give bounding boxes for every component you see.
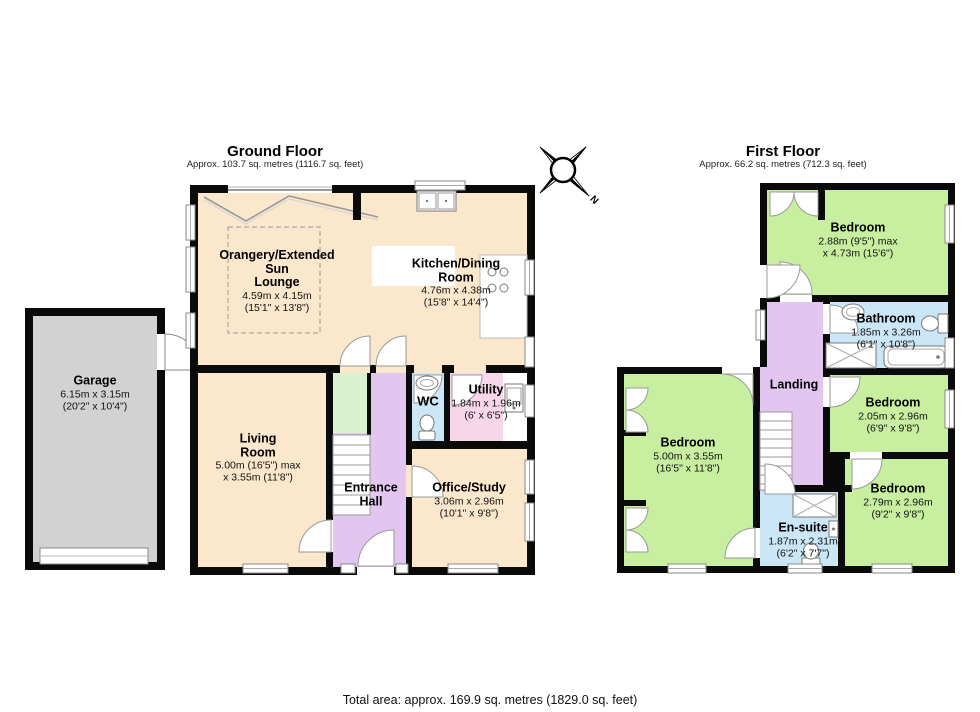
room-label-bedroom-right: Bedroom 2.05m x 2.96m (6'9" x 9'8") <box>858 396 927 434</box>
window <box>945 338 954 368</box>
room-dims-imperial: (16'5" x 11'8") <box>653 462 722 474</box>
room-name: Lounge <box>219 276 334 290</box>
room-label-entrance-hall: Entrance Hall <box>344 482 398 509</box>
room-name: Orangery/Extended <box>219 249 334 263</box>
room-name: Office/Study <box>432 481 506 495</box>
room-label-office: Office/Study 3.06m x 2.96m (10'1" x 9'8"… <box>432 481 506 519</box>
room-dims-metric: 2.88m (9'5") max <box>818 235 897 247</box>
room-dims-imperial: (6'2" x 7'7") <box>768 547 837 559</box>
ground-floor-title: Ground Floor <box>227 143 323 160</box>
room-dims-metric: 2.79m x 2.96m <box>863 496 932 508</box>
room-name: Bedroom <box>858 396 927 410</box>
room-label-kitchen: Kitchen/Dining Room 4.76m x 4.38m (15'8"… <box>412 258 500 309</box>
window <box>525 385 534 417</box>
ground-floor-subtitle: Approx. 103.7 sq. metres (1116.7 sq. fee… <box>187 159 364 170</box>
room-dims-imperial: (10'1" x 9'8") <box>432 507 506 519</box>
room-dims-metric: 3.06m x 2.96m <box>432 495 506 507</box>
room-dims-metric: 6.15m x 3.15m <box>60 388 129 400</box>
room-dims-imperial: (6'1" x 10'8") <box>851 338 920 350</box>
total-area-note: Total area: approx. 169.9 sq. metres (18… <box>0 693 980 707</box>
room-dims-metric: 2.05m x 2.96m <box>858 410 927 422</box>
room-label-landing: Landing <box>770 378 819 392</box>
room-dims-metric: 5.00m (16'5") max <box>215 460 300 472</box>
room-name: Landing <box>770 378 819 392</box>
room-name: Bedroom <box>818 221 897 235</box>
first-floor-title: First Floor <box>746 143 820 160</box>
room-name: En-suite <box>768 521 837 535</box>
room-name: Room <box>412 271 500 285</box>
room-label-bedroom-left: Bedroom 5.00m x 3.55m (16'5" x 11'8") <box>653 436 722 474</box>
room-dims-imperial: (6'9" x 9'8") <box>858 422 927 434</box>
room-dims-imperial: (9'2" x 9'8") <box>863 508 932 520</box>
room-name: Hall <box>344 495 398 509</box>
window <box>396 564 408 573</box>
room-name: Utility <box>451 383 520 397</box>
room-name: Garage <box>60 374 129 388</box>
room-name: Sun <box>219 262 334 276</box>
garage-door-icon <box>40 548 148 564</box>
wc-toilet-icon <box>419 415 435 440</box>
room-dims-metric: 1.84m x 1.96m <box>451 397 520 409</box>
room-name: Room <box>215 446 300 460</box>
room-label-bathroom: Bathroom 1.85m x 3.26m (6'1" x 10'8") <box>851 312 920 350</box>
room-dims-imperial: x 4.73m (15'6") <box>818 247 897 259</box>
room-name: Kitchen/Dining <box>412 258 500 272</box>
room-name: Bathroom <box>851 312 920 326</box>
room-name: Bedroom <box>653 436 722 450</box>
room-label-garage: Garage 6.15m x 3.15m (20'2" x 10'4") <box>60 374 129 412</box>
room-label-living: Living Room 5.00m (16'5") max x 3.55m (1… <box>215 433 300 484</box>
ensuite-shower-icon <box>793 494 836 517</box>
floorplan-graphics: N <box>0 0 980 712</box>
bathroom-toilet-icon <box>922 314 949 333</box>
room-dims-metric: 1.87m x 2.31m <box>768 535 837 547</box>
floorplan-page: N Ground Floor Approx. 103.7 sq. metres … <box>0 0 980 712</box>
garage-plan <box>25 308 201 570</box>
room-name: Bedroom <box>863 482 932 496</box>
wc-sink-icon <box>416 376 438 390</box>
room-label-utility: Utility 1.84m x 1.96m (6' x 6'5") <box>451 383 520 421</box>
room-label-bedroom-bottom: Bedroom 2.79m x 2.96m (9'2" x 9'8") <box>863 482 932 520</box>
first-floor-subtitle: Approx. 66.2 sq. metres (712.3 sq. feet) <box>699 159 866 170</box>
room-label-ensuite: En-suite 1.87m x 2.31m (6'2" x 7'7") <box>768 521 837 559</box>
room-dims-imperial: (20'2" x 10'4") <box>60 400 129 412</box>
room-label-bedroom-top: Bedroom 2.88m (9'5") max x 4.73m (15'6") <box>818 221 897 259</box>
room-name: Entrance <box>344 482 398 496</box>
room-dims-imperial: (15'8" x 14'4") <box>412 297 500 309</box>
room-label-orangery: Orangery/Extended Sun Lounge 4.59m x 4.1… <box>219 249 334 314</box>
room-name: WC <box>417 394 439 408</box>
room-dims-metric: 1.85m x 3.26m <box>851 326 920 338</box>
room-dims-imperial: (6' x 6'5") <box>451 409 520 421</box>
room-dims-metric: 4.76m x 4.38m <box>412 285 500 297</box>
room-label-wc: WC <box>417 394 439 408</box>
cupboard-floor <box>333 373 368 433</box>
room-name: Living <box>215 433 300 447</box>
landing-floor <box>767 302 823 367</box>
compass-icon: N <box>540 147 600 207</box>
room-dims-metric: 4.59m x 4.15m <box>219 289 334 301</box>
kitchen-sink-icon <box>417 191 456 211</box>
room-dims-imperial: x 3.55m (11'8") <box>215 472 300 484</box>
room-dims-imperial: (15'1" x 13'8") <box>219 301 334 313</box>
window <box>341 564 355 573</box>
window <box>525 337 534 367</box>
room-dims-metric: 5.00m x 3.55m <box>653 450 722 462</box>
